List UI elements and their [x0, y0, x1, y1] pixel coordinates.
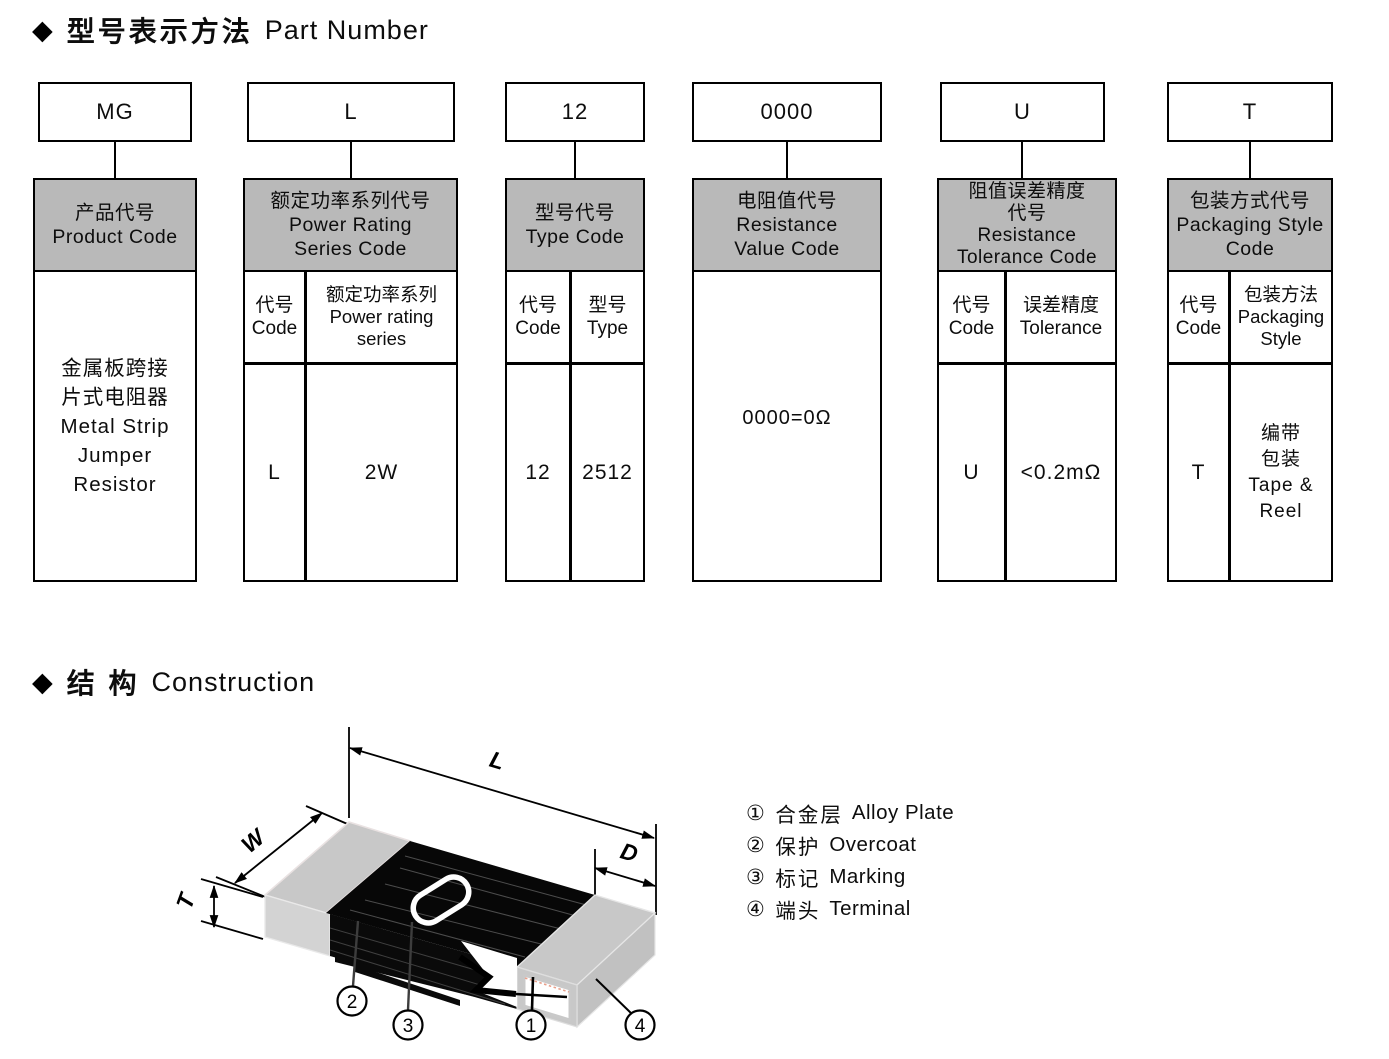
legend-en: Alloy Plate — [852, 801, 954, 825]
part-number-title-en: Part Number — [265, 15, 429, 46]
circled-2-icon: ② — [746, 833, 765, 858]
subheader-row: 代号 Code 额定功率系列 Power rating series — [245, 272, 456, 365]
legend-zh: 保护 — [775, 830, 820, 860]
subheader-code: 代号 Code — [245, 272, 307, 362]
dim-label-L: L — [487, 746, 508, 775]
column-product-code: 产品代号 Product Code 金属板跨接 片式电阻器 Metal Stri… — [33, 178, 197, 582]
value-desc: <0.2mΩ — [1007, 365, 1115, 580]
connector-line — [1021, 141, 1023, 179]
value-code: T — [1169, 365, 1231, 580]
code-box-type: 12 — [505, 82, 645, 142]
construction-title-zh: 结 构 — [67, 662, 140, 702]
diamond-bullet-icon: ◆ — [32, 17, 53, 44]
callout-num-alloy: 1 — [526, 1016, 537, 1037]
code-box-packaging: T — [1167, 82, 1333, 142]
product-description: 金属板跨接 片式电阻器 Metal Strip Jumper Resistor — [35, 272, 195, 580]
column-resistance-value: 电阻值代号 Resistance Value Code 0000=0Ω — [692, 178, 882, 582]
construction-legend: ① 合金层 Alloy Plate ② 保护 Overcoat ③ 标记 Mar… — [746, 797, 954, 925]
diamond-bullet-icon: ◆ — [32, 669, 53, 696]
callout-num-overcoat: 2 — [347, 992, 358, 1013]
value-row: L 2W — [245, 365, 456, 580]
value-desc: 2W — [307, 365, 456, 580]
legend-zh: 合金层 — [775, 798, 843, 828]
legend-item-terminal: ④ 端头 Terminal — [746, 893, 954, 925]
subheader-desc: 额定功率系列 Power rating series — [307, 272, 456, 362]
code-box-tolerance: U — [940, 82, 1105, 142]
subheader-code: 代号 Code — [507, 272, 572, 362]
code-box-resistance: 0000 — [692, 82, 882, 142]
value-code: 12 — [507, 365, 572, 580]
value-row: T 编带 包装 Tape & Reel — [1169, 365, 1331, 580]
column-type-code: 型号代号 Type Code 代号 Code 型号 Type 12 2512 — [505, 178, 645, 582]
legend-zh: 标记 — [775, 862, 820, 892]
column-header: 产品代号 Product Code — [35, 180, 195, 272]
legend-item-alloy: ① 合金层 Alloy Plate — [746, 797, 954, 829]
subheader-row: 代号 Code 型号 Type — [507, 272, 643, 365]
column-header: 额定功率系列代号 Power Rating Series Code — [245, 180, 456, 272]
dim-label-T: T — [171, 888, 201, 912]
value-row: 12 2512 — [507, 365, 643, 580]
circled-1-icon: ① — [746, 801, 765, 826]
code-box-power: L — [247, 82, 455, 142]
code-box-product: MG — [38, 82, 192, 142]
subheader-desc: 误差精度 Tolerance — [1007, 272, 1115, 362]
connector-line — [114, 141, 116, 179]
column-header: 电阻值代号 Resistance Value Code — [694, 180, 880, 272]
datasheet-page: ◆ 型号表示方法 Part Number MG L 12 0000 U T 产品… — [0, 0, 1389, 1059]
legend-item-overcoat: ② 保护 Overcoat — [746, 829, 954, 861]
value-code: L — [245, 365, 307, 580]
callout-num-terminal: 4 — [635, 1016, 646, 1037]
column-power-rating: 额定功率系列代号 Power Rating Series Code 代号 Cod… — [243, 178, 458, 582]
legend-item-marking: ③ 标记 Marking — [746, 861, 954, 893]
column-header: 包装方式代号 Packaging Style Code — [1169, 180, 1331, 272]
subheader-desc: 型号 Type — [572, 272, 643, 362]
resistor-construction-diagram: L W T D — [150, 712, 680, 1057]
subheader-code: 代号 Code — [939, 272, 1007, 362]
connector-line — [1249, 141, 1251, 179]
value-desc: 2512 — [572, 365, 643, 580]
value-desc: 编带 包装 Tape & Reel — [1231, 365, 1331, 580]
circled-3-icon: ③ — [746, 865, 765, 890]
construction-title-en: Construction — [152, 667, 316, 698]
dim-label-D: D — [618, 838, 641, 868]
connector-line — [786, 141, 788, 179]
column-header: 型号代号 Type Code — [507, 180, 643, 272]
subheader-row: 代号 Code 包装方法 Packaging Style — [1169, 272, 1331, 365]
dim-label-W: W — [236, 822, 271, 857]
resistance-value: 0000=0Ω — [694, 272, 880, 580]
callout-num-marking: 3 — [403, 1016, 414, 1037]
dimension-T — [201, 879, 263, 939]
column-packaging: 包装方式代号 Packaging Style Code 代号 Code 包装方法… — [1167, 178, 1333, 582]
legend-en: Overcoat — [829, 833, 916, 857]
subheader-row: 代号 Code 误差精度 Tolerance — [939, 272, 1115, 365]
connector-line — [350, 141, 352, 179]
construction-section-title: ◆ 结 构 Construction — [32, 662, 315, 702]
part-number-section-title: ◆ 型号表示方法 Part Number — [32, 10, 429, 50]
legend-en: Marking — [829, 865, 905, 889]
subheader-desc: 包装方法 Packaging Style — [1231, 272, 1331, 362]
column-tolerance: 阻值误差精度 代号 Resistance Tolerance Code 代号 C… — [937, 178, 1117, 582]
value-code: U — [939, 365, 1007, 580]
part-number-title-zh: 型号表示方法 — [67, 10, 253, 50]
legend-en: Terminal — [829, 897, 910, 921]
column-header: 阻值误差精度 代号 Resistance Tolerance Code — [939, 180, 1115, 272]
subheader-code: 代号 Code — [1169, 272, 1231, 362]
legend-zh: 端头 — [775, 894, 820, 924]
value-row: U <0.2mΩ — [939, 365, 1115, 580]
resistor-body — [265, 822, 655, 1027]
connector-line — [574, 141, 576, 179]
circled-4-icon: ④ — [746, 897, 765, 922]
